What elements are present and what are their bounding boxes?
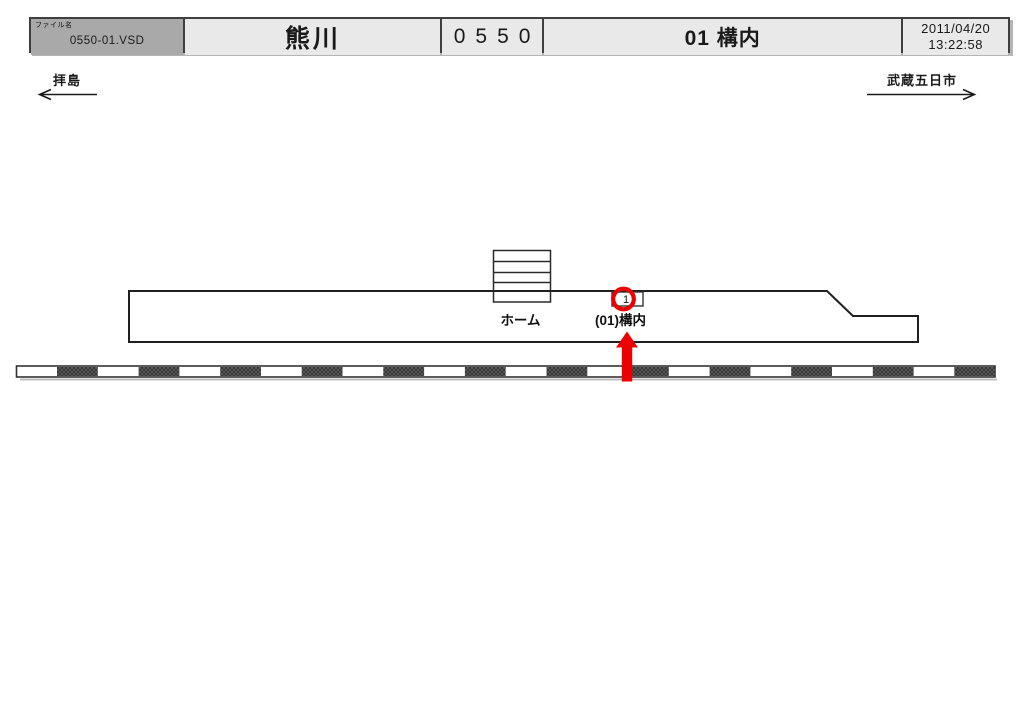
station-diagram: ホーム 1 (01)構内 [0,0,1024,724]
track-label: (01)構内 [595,312,646,328]
platform-label: ホーム [500,313,540,328]
station-diagram-page: ファイル名 0550-01.VSD 熊川 0550 01 構内 2011/04/… [0,0,1024,724]
track-number-text: 1 [623,294,629,306]
track-line [17,366,998,380]
